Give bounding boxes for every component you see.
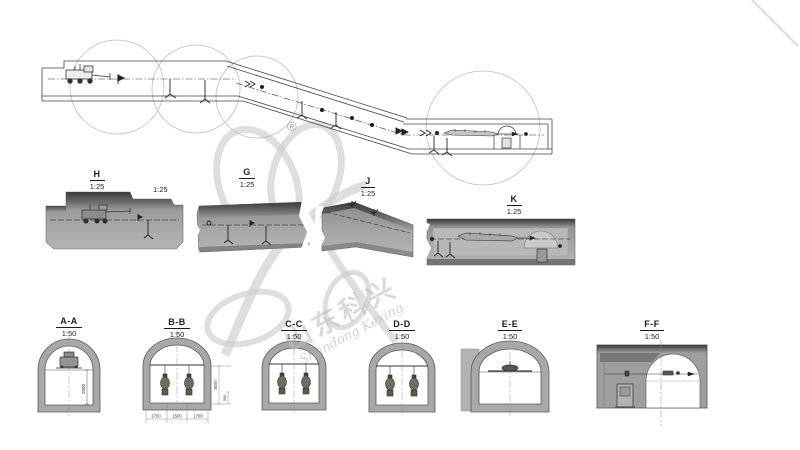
section-k-name: K — [507, 195, 522, 206]
section-label-h: H 1:25 — [69, 165, 125, 191]
cross-section-label-ee: E-E 1:50 — [482, 315, 538, 341]
section-j-drawing — [313, 201, 413, 257]
cross-section-aa-drawing: 2000 — [38, 334, 100, 416]
bb-bottom-dim-3: 1700 — [193, 414, 203, 419]
bb-right-lower-dim-text: 300 — [222, 394, 227, 401]
bb-bottom-dim-2: 1500 — [172, 414, 182, 419]
section-h-name: H — [90, 170, 105, 181]
cc-name: C-C — [281, 320, 307, 331]
plan-slope-drift — [226, 61, 412, 154]
ff-scale: 1:50 — [624, 333, 680, 341]
cross-section-label-cc: C-C 1:50 — [266, 315, 322, 341]
bb-right-upper-dim-text: 3000 — [213, 380, 218, 390]
cross-section-cc-drawing — [262, 334, 326, 414]
aa-dimension: 2000 — [81, 370, 89, 404]
section-g-drawing — [190, 198, 317, 252]
cross-section-ee-drawing — [461, 338, 549, 416]
section-k-drawing — [421, 219, 575, 265]
plan-drill-rig — [66, 64, 110, 83]
section-label-j: J 1:25 — [340, 172, 396, 198]
ff-cabinet — [615, 384, 635, 407]
section-j-name: J — [361, 177, 375, 188]
plan-view — [42, 40, 552, 185]
ee-name: E-E — [498, 320, 523, 331]
drawing-canvas: 2000 3000 300 1700 1500 1700 — [0, 0, 800, 450]
cc-scale: 1:50 — [266, 333, 322, 341]
bb-scale: 1:50 — [149, 331, 205, 339]
watermark-swoosh-topright — [752, 0, 798, 46]
registered-trademark-icon: ® — [287, 119, 297, 134]
watermark-logo — [201, 0, 798, 355]
cross-section-label-ff: F-F 1:50 — [624, 315, 680, 341]
plan-conveyor — [435, 129, 527, 136]
section-label-g: G 1:25 — [219, 163, 275, 189]
bb-bottom-dim-1: 1700 — [151, 414, 161, 419]
ff-name: F-F — [640, 320, 664, 331]
aa-scale: 1:50 — [41, 330, 97, 338]
cross-section-label-bb: B-B 1:50 — [149, 313, 205, 339]
ff-roof-shadow — [600, 353, 660, 362]
dd-scale: 1:50 — [374, 333, 430, 341]
plan-detail-circles — [70, 40, 540, 185]
section-j-scale: 1:25 — [340, 190, 396, 198]
section-label-k: K 1:25 — [486, 190, 542, 216]
aa-name: A-A — [56, 317, 82, 328]
cross-section-label-dd: D-D 1:50 — [374, 315, 430, 341]
section-k-cabinet — [537, 249, 547, 262]
cad-drawing-sheet: 2000 3000 300 1700 1500 1700 — [0, 0, 800, 450]
dd-name: D-D — [389, 320, 415, 331]
ee-crown-fan — [488, 361, 532, 371]
section-h-scale: 1:25 — [69, 183, 125, 191]
ee-scale: 1:50 — [482, 333, 538, 341]
cross-section-dd-drawing — [369, 336, 435, 416]
section-g-scale: 1:25 — [219, 181, 275, 189]
aa-crown-machine — [56, 352, 82, 368]
section-k-scale: 1:25 — [486, 208, 542, 216]
cross-section-label-aa: A-A 1:50 — [41, 312, 97, 338]
section-g-name: G — [239, 168, 255, 179]
cross-section-ff-drawing — [597, 340, 707, 426]
plan-cabinet — [502, 138, 511, 148]
plan-bottom-drift — [403, 119, 552, 154]
bb-name: B-B — [164, 318, 190, 329]
section-h-drawing — [46, 192, 183, 249]
aa-height-dim-text: 2000 — [81, 383, 86, 394]
plan-extra-scale-label: 1:25 — [153, 185, 168, 194]
